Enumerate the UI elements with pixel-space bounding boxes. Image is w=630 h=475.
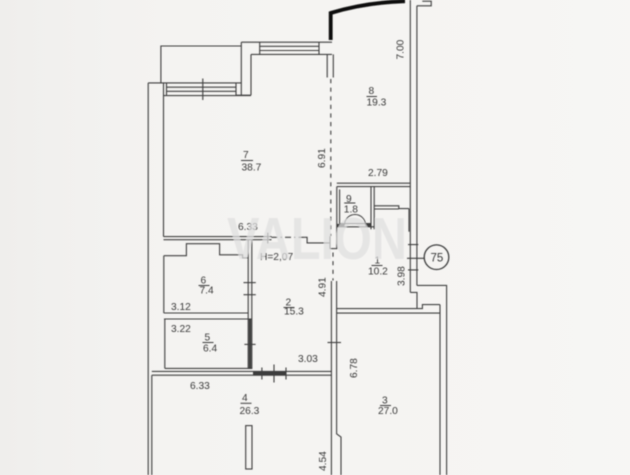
svg-text:7.00: 7.00 <box>396 39 407 59</box>
svg-text:27.0: 27.0 <box>378 406 398 417</box>
svg-text:6.78: 6.78 <box>349 358 360 378</box>
svg-text:VALION: VALION <box>227 206 407 272</box>
svg-text:3.22: 3.22 <box>171 324 191 335</box>
svg-text:19.3: 19.3 <box>367 98 387 109</box>
svg-text:38.7: 38.7 <box>242 163 262 174</box>
svg-text:8: 8 <box>369 86 375 97</box>
svg-text:3: 3 <box>382 396 388 407</box>
svg-text:7.4: 7.4 <box>200 286 214 297</box>
svg-text:6.4: 6.4 <box>203 344 217 355</box>
svg-text:75: 75 <box>431 252 444 264</box>
svg-text:15.3: 15.3 <box>284 307 304 318</box>
svg-text:2.79: 2.79 <box>368 168 388 179</box>
svg-text:5: 5 <box>205 333 211 344</box>
svg-text:3.12: 3.12 <box>171 302 191 313</box>
svg-text:4.54: 4.54 <box>318 451 329 471</box>
svg-text:4: 4 <box>242 393 248 404</box>
svg-text:6.91: 6.91 <box>317 148 328 168</box>
svg-text:6.33: 6.33 <box>190 381 210 392</box>
svg-text:7: 7 <box>243 150 249 161</box>
svg-text:3.03: 3.03 <box>298 354 318 365</box>
svg-text:4.91: 4.91 <box>318 277 329 297</box>
svg-text:26.3: 26.3 <box>240 406 260 417</box>
